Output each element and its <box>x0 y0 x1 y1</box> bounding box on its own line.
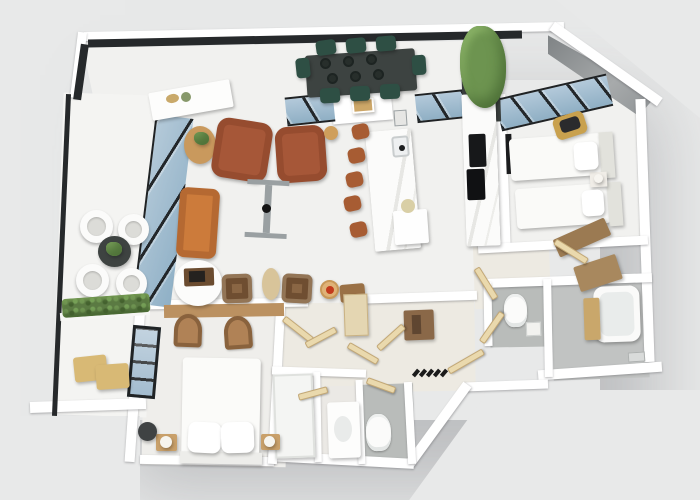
dining-place-setting <box>350 71 361 82</box>
built-in-oven <box>468 134 486 168</box>
dining-place-setting <box>373 69 384 80</box>
background-mask-bottom-right <box>472 390 700 500</box>
master-round-stool <box>138 422 157 441</box>
bath-side-cabinet <box>583 298 600 341</box>
dining-place-setting <box>327 73 338 84</box>
bathtub-basin <box>599 291 635 336</box>
master-lamp-left <box>160 436 172 448</box>
master-pillow-left <box>187 421 222 454</box>
twin-nightstand-lamp <box>594 174 603 183</box>
desk-chair-arch <box>173 314 202 348</box>
coffee-table-decor <box>262 204 271 213</box>
twin-pillow-right <box>581 189 605 216</box>
console-decor-plant <box>181 92 191 102</box>
wall-wc-bath-divider <box>543 279 553 377</box>
wc-bottom-toilet <box>365 414 391 452</box>
dining-place-setting <box>343 56 354 67</box>
cooktop <box>466 169 485 201</box>
kitchen-hanging-plant <box>460 26 506 108</box>
bath-floor-faucet <box>628 351 646 362</box>
dining-chair <box>315 39 337 57</box>
twin-pillow-left <box>573 141 599 171</box>
small-round-stool <box>324 126 338 140</box>
background-mask-bottom-left <box>0 416 140 500</box>
dining-chair <box>411 55 426 76</box>
wood-lounger <box>95 363 130 390</box>
island-faucet <box>399 145 405 151</box>
wc-center-sink <box>526 322 541 337</box>
fruit-plate <box>401 199 415 213</box>
pouf-right <box>281 273 312 304</box>
hall-console-slot <box>412 315 422 334</box>
dining-place-setting <box>320 58 331 69</box>
dining-place-setting <box>366 54 377 65</box>
master-headboard <box>180 451 262 464</box>
floor-plan-render <box>0 0 700 500</box>
tv-screen <box>189 271 205 283</box>
pouf-left <box>222 273 253 303</box>
armchair-right <box>274 124 328 183</box>
wc-center-toilet <box>503 294 527 328</box>
dining-chair <box>320 87 341 103</box>
hall-wardrobe <box>343 294 368 337</box>
dining-chair <box>375 35 396 52</box>
armchair-left <box>210 116 275 184</box>
papasan-chair <box>76 264 109 297</box>
side-table-plant <box>194 132 209 145</box>
master-pillow-right <box>220 421 254 453</box>
decor-vase <box>262 268 280 300</box>
balcony-table-plant <box>106 242 122 256</box>
dining-chair <box>295 57 311 78</box>
twin-headboard-right <box>606 182 623 227</box>
dining-chair <box>380 84 401 100</box>
dining-chair <box>350 85 371 101</box>
coffee-machine <box>393 110 407 127</box>
dining-chair <box>345 37 366 54</box>
decor-bowl-center <box>326 286 334 294</box>
kitchen-cube-table <box>393 209 429 245</box>
master-lamp-right <box>264 436 275 447</box>
sofa-orange <box>176 187 221 260</box>
